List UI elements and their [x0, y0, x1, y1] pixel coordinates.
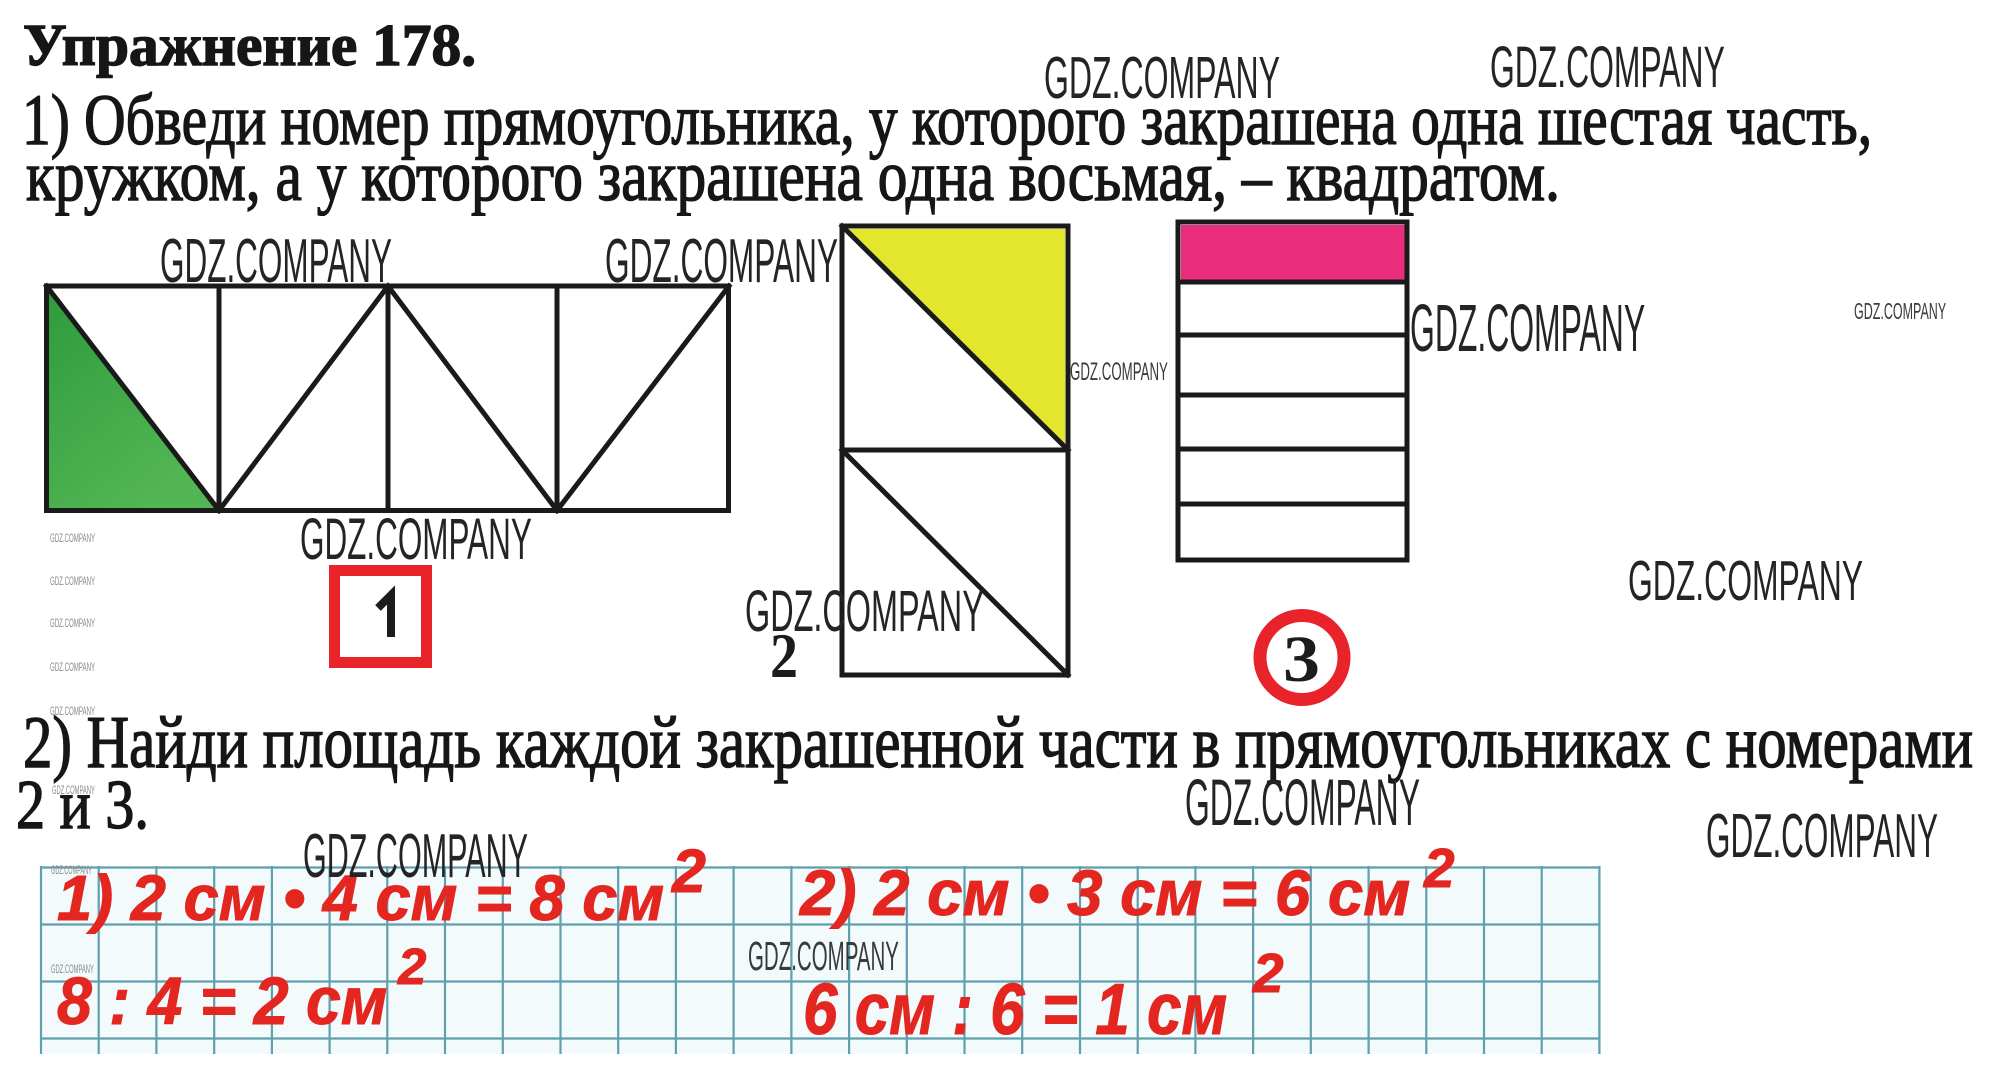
- svg-text:3: 3: [1283, 623, 1320, 696]
